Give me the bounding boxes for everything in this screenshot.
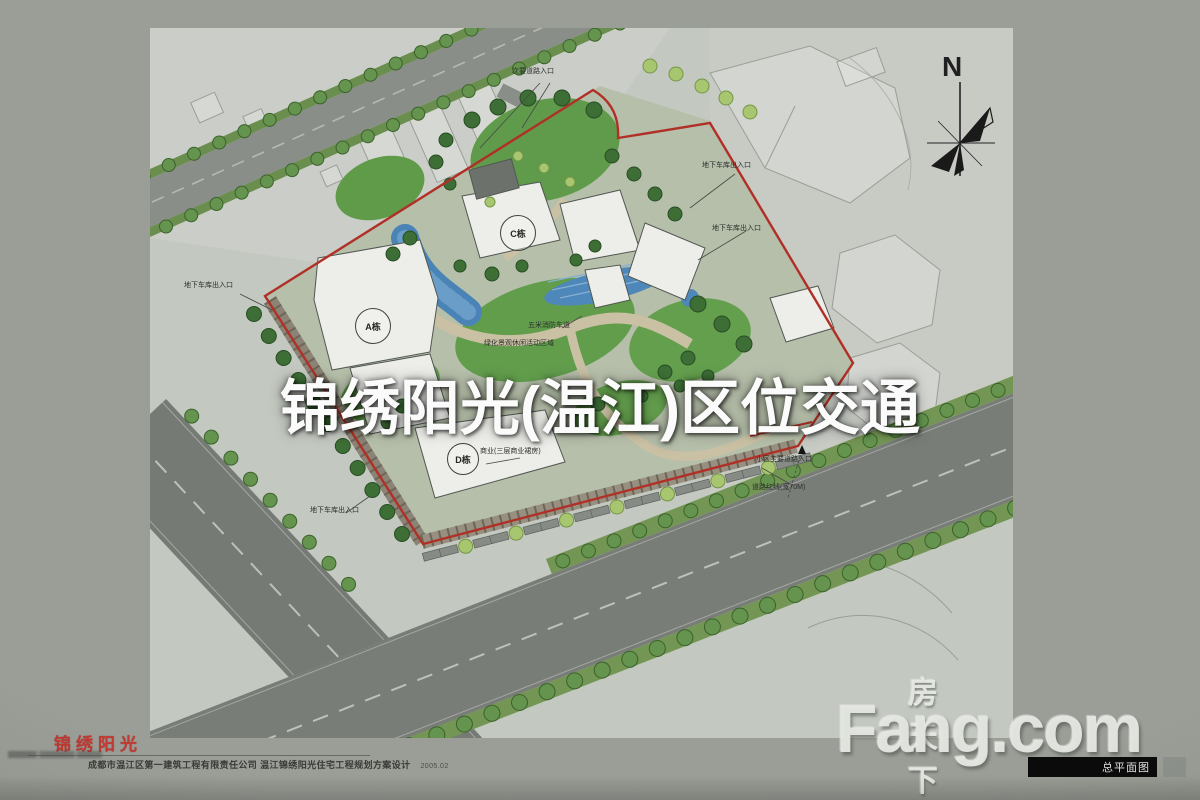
building-label-a-text: A栋 — [365, 320, 381, 333]
annotation-label: 地下车库出入口 — [712, 225, 761, 233]
plan-type-bar: 总平面图 — [1028, 757, 1157, 777]
footer-credit-date: 2005.02 — [421, 763, 449, 770]
building-label-d-text: D栋 — [455, 453, 471, 466]
footer-credit-text: 成都市温江区第一建筑工程有限责任公司 温江锦绣阳光住宅工程规划方案设计 — [88, 760, 411, 770]
slide-stage: N A栋 C栋 D栋 次要道路入口 地下车库出入口 地下车库出入口 地下车库出入… — [0, 0, 1200, 800]
annotation-label: 五米消防车道 — [528, 322, 570, 330]
footer-credit: 成都市温江区第一建筑工程有限责任公司 温江锦绣阳光住宅工程规划方案设计2005.… — [88, 758, 449, 771]
annotation-label: 商业(三层商业裙房) — [480, 448, 541, 456]
plan-type-label: 总平面图 — [1102, 759, 1150, 775]
page-title: 锦绣阳光(温江)区位交通 — [280, 360, 920, 447]
annotation-label: 小区主要道路入口 — [756, 456, 812, 464]
building-label-d: D栋 — [447, 443, 479, 475]
annotation-label: 地下车库出入口 — [310, 507, 359, 515]
footer-divider — [28, 755, 370, 756]
annotation-label: 地下车库出入口 — [184, 282, 233, 290]
building-label-c: C栋 — [500, 215, 536, 251]
corner-swatch — [1163, 757, 1186, 777]
annotation-label: 绿化景观休闲活动区域 — [484, 340, 554, 348]
building-label-a: A栋 — [355, 308, 391, 344]
annotation-label: 道路红线(宽70M) — [752, 484, 805, 492]
compass-north-label: N — [942, 51, 962, 82]
annotation-label: 地下车库出入口 — [702, 162, 751, 170]
building-label-c-text: C栋 — [510, 227, 526, 240]
annotation-label: 次要道路入口 — [512, 68, 554, 76]
